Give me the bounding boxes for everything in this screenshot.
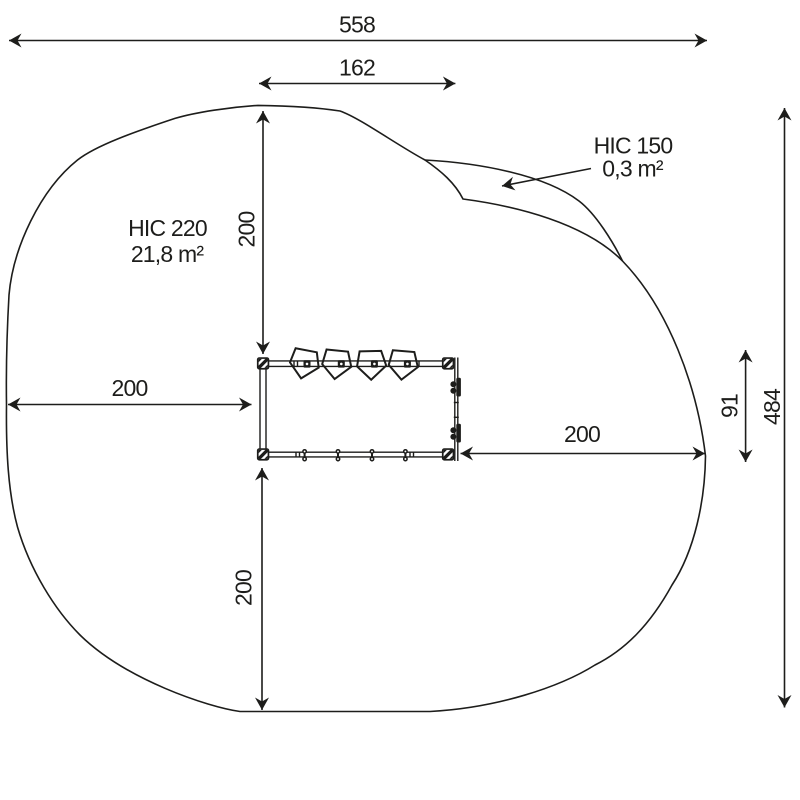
svg-text:21,8 m²: 21,8 m² — [131, 241, 205, 267]
svg-text:200: 200 — [234, 212, 260, 248]
svg-text:91: 91 — [717, 394, 743, 418]
svg-text:484: 484 — [759, 388, 785, 425]
svg-text:200: 200 — [112, 375, 148, 401]
svg-text:200: 200 — [564, 421, 600, 447]
svg-text:0,3 m²: 0,3 m² — [602, 156, 664, 182]
svg-text:558: 558 — [339, 12, 375, 38]
svg-text:HIC 220: HIC 220 — [128, 215, 207, 241]
svg-text:200: 200 — [231, 570, 257, 606]
svg-text:162: 162 — [339, 55, 375, 81]
